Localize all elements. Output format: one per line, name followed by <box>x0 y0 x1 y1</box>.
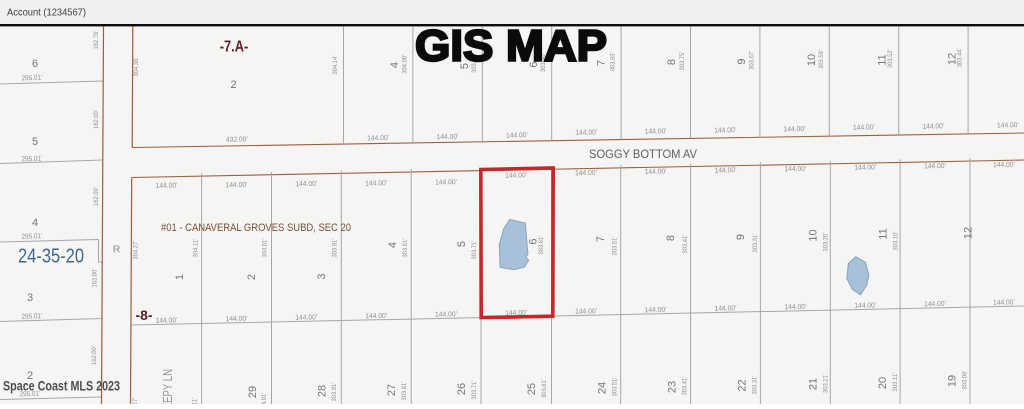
svg-text:8: 8 <box>665 235 677 241</box>
svg-text:27: 27 <box>386 384 398 396</box>
svg-text:Account (1234567): Account (1234567) <box>7 7 86 18</box>
svg-text:303.10’: 303.10’ <box>893 231 900 250</box>
svg-text:162.00’: 162.00’ <box>91 346 98 365</box>
svg-text:304.11’: 304.11’ <box>192 238 199 257</box>
svg-text:144.00’: 144.00’ <box>155 181 178 190</box>
svg-text:5: 5 <box>32 136 38 148</box>
svg-text:20: 20 <box>877 377 889 389</box>
svg-text:144.00’: 144.00’ <box>993 160 1016 169</box>
svg-text:144.00’: 144.00’ <box>645 167 668 176</box>
svg-text:144.00’: 144.00’ <box>225 314 248 323</box>
svg-text:22: 22 <box>737 379 749 391</box>
svg-text:2: 2 <box>246 274 258 280</box>
svg-text:303.81’: 303.81’ <box>401 381 408 400</box>
svg-text:162.00’: 162.00’ <box>93 110 100 129</box>
svg-text:303.81’: 303.81’ <box>402 238 409 257</box>
svg-text:303.75’: 303.75’ <box>679 51 686 70</box>
svg-text:144.00’: 144.00’ <box>225 180 248 189</box>
svg-text:28: 28 <box>317 385 329 397</box>
svg-text:303.59’: 303.59’ <box>818 49 825 68</box>
svg-text:303.31’: 303.31’ <box>752 375 759 394</box>
svg-text:295.01’: 295.01’ <box>21 231 43 241</box>
svg-text:1: 1 <box>174 274 186 280</box>
svg-text:12: 12 <box>963 227 975 239</box>
svg-text:303.31’: 303.31’ <box>752 233 759 252</box>
svg-text:144.00’: 144.00’ <box>924 161 947 170</box>
svg-text:144.00’: 144.00’ <box>993 297 1016 306</box>
svg-text:25: 25 <box>526 383 538 395</box>
svg-text:295.01’: 295.01’ <box>21 73 43 83</box>
svg-text:144.00’: 144.00’ <box>436 132 459 141</box>
svg-text:304.01’: 304.01’ <box>262 238 269 257</box>
svg-text:144.00’: 144.00’ <box>295 312 318 321</box>
svg-text:162.00’: 162.00’ <box>93 187 100 206</box>
svg-text:10: 10 <box>808 229 820 241</box>
svg-text:295.01’: 295.01’ <box>21 154 43 164</box>
svg-text:-7.A-: -7.A- <box>220 39 249 56</box>
svg-text:SLEEPY LN: SLEEPY LN <box>161 369 175 404</box>
svg-text:5: 5 <box>456 241 468 247</box>
svg-text:Space Coast MLS 2023: Space Coast MLS 2023 <box>3 378 120 394</box>
svg-text:304.01’: 304.01’ <box>261 392 268 404</box>
svg-text:3: 3 <box>27 292 33 304</box>
svg-text:4: 4 <box>387 242 399 248</box>
svg-text:144.00’: 144.00’ <box>714 125 737 134</box>
svg-text:303.51’: 303.51’ <box>612 236 619 255</box>
svg-text:304.27’: 304.27’ <box>133 240 140 259</box>
svg-text:303.41’: 303.41’ <box>682 376 689 395</box>
svg-text:144.00’: 144.00’ <box>435 309 458 318</box>
svg-text:144.00’: 144.00’ <box>575 127 598 136</box>
svg-text:26: 26 <box>456 383 468 395</box>
svg-text:303.61’: 303.61’ <box>538 235 545 254</box>
svg-text:9: 9 <box>736 58 748 64</box>
svg-text:144.00’: 144.00’ <box>295 179 318 188</box>
svg-text:304.14’: 304.14’ <box>332 55 339 74</box>
svg-text:144.00’: 144.00’ <box>575 168 598 177</box>
svg-text:2: 2 <box>230 79 236 91</box>
svg-text:144.00’: 144.00’ <box>783 124 806 133</box>
svg-text:10: 10 <box>806 54 818 66</box>
svg-text:6: 6 <box>32 58 38 70</box>
svg-text:144.00’: 144.00’ <box>645 126 668 135</box>
svg-text:144.00’: 144.00’ <box>365 178 388 187</box>
svg-text:144.00’: 144.00’ <box>853 122 876 131</box>
svg-text:304.27’: 304.27’ <box>132 397 139 404</box>
svg-text:303.20’: 303.20’ <box>823 232 830 251</box>
svg-text:144.00’: 144.00’ <box>924 299 947 308</box>
svg-text:303.83’: 303.83’ <box>610 52 617 71</box>
svg-text:144.00’: 144.00’ <box>922 121 945 130</box>
svg-text:144.00’: 144.00’ <box>365 311 388 320</box>
svg-text:303.44’: 303.44’ <box>957 48 964 67</box>
svg-text:4: 4 <box>32 217 38 229</box>
svg-text:9: 9 <box>735 234 747 240</box>
svg-text:303.52’: 303.52’ <box>887 49 894 68</box>
svg-text:303.21’: 303.21’ <box>823 374 830 393</box>
svg-text:11: 11 <box>878 228 890 239</box>
svg-text:SOGGY BOTTOM AV: SOGGY BOTTOM AV <box>589 147 698 161</box>
svg-text:303.91’: 303.91’ <box>331 382 338 401</box>
svg-text:19: 19 <box>947 375 959 387</box>
svg-text:304.11’: 304.11’ <box>192 397 199 404</box>
svg-text:303.11’: 303.11’ <box>892 372 899 391</box>
svg-text:162.00’: 162.00’ <box>92 268 99 287</box>
svg-text:144.00’: 144.00’ <box>505 170 528 179</box>
svg-text:144.00’: 144.00’ <box>997 120 1020 129</box>
svg-text:303.51’: 303.51’ <box>612 377 619 396</box>
svg-text:303.67’: 303.67’ <box>748 50 755 69</box>
svg-text:7: 7 <box>595 236 607 242</box>
svg-text:3: 3 <box>316 273 328 279</box>
svg-text:#01 - CANAVERAL GROVES SUBD, S: #01 - CANAVERAL GROVES SUBD, SEC 20 <box>161 222 351 234</box>
svg-text:23: 23 <box>667 381 679 393</box>
svg-text:144.00’: 144.00’ <box>714 165 737 174</box>
svg-text:144.00’: 144.00’ <box>784 164 807 173</box>
svg-text:144.00’: 144.00’ <box>854 300 877 309</box>
svg-text:144.00’: 144.00’ <box>435 177 458 186</box>
svg-text:24: 24 <box>597 382 609 394</box>
svg-text:-8-: -8- <box>136 308 153 323</box>
svg-text:144.00’: 144.00’ <box>784 302 807 311</box>
svg-text:29: 29 <box>247 386 259 398</box>
svg-text:144.00’: 144.00’ <box>645 305 668 314</box>
svg-text:432.00’: 432.00’ <box>226 134 249 143</box>
svg-text:24-35-20: 24-35-20 <box>18 246 84 268</box>
svg-text:304.38’: 304.38’ <box>133 57 140 76</box>
svg-text:144.00’: 144.00’ <box>854 162 877 171</box>
svg-text:144.00’: 144.00’ <box>367 133 390 142</box>
svg-text:144.00’: 144.00’ <box>155 315 178 324</box>
svg-text:144.00’: 144.00’ <box>714 303 737 312</box>
svg-text:303.91’: 303.91’ <box>332 238 339 257</box>
svg-text:303.71’: 303.71’ <box>471 240 478 259</box>
svg-text:21: 21 <box>808 378 820 390</box>
svg-text:304.08’: 304.08’ <box>401 54 408 73</box>
svg-text:R: R <box>113 243 121 255</box>
svg-text:303.71’: 303.71’ <box>471 380 478 399</box>
svg-text:295.01’: 295.01’ <box>21 311 43 321</box>
svg-text:144.00’: 144.00’ <box>506 130 529 139</box>
svg-text:303.08’: 303.08’ <box>962 370 969 389</box>
svg-text:GIS MAP: GIS MAP <box>415 22 607 71</box>
svg-text:8: 8 <box>666 59 678 65</box>
svg-text:303.41’: 303.41’ <box>682 234 689 253</box>
svg-text:182.78’: 182.78’ <box>93 30 100 49</box>
svg-text:144.00’: 144.00’ <box>575 306 598 315</box>
svg-text:4: 4 <box>389 62 401 68</box>
svg-text:303.61’: 303.61’ <box>541 379 548 398</box>
